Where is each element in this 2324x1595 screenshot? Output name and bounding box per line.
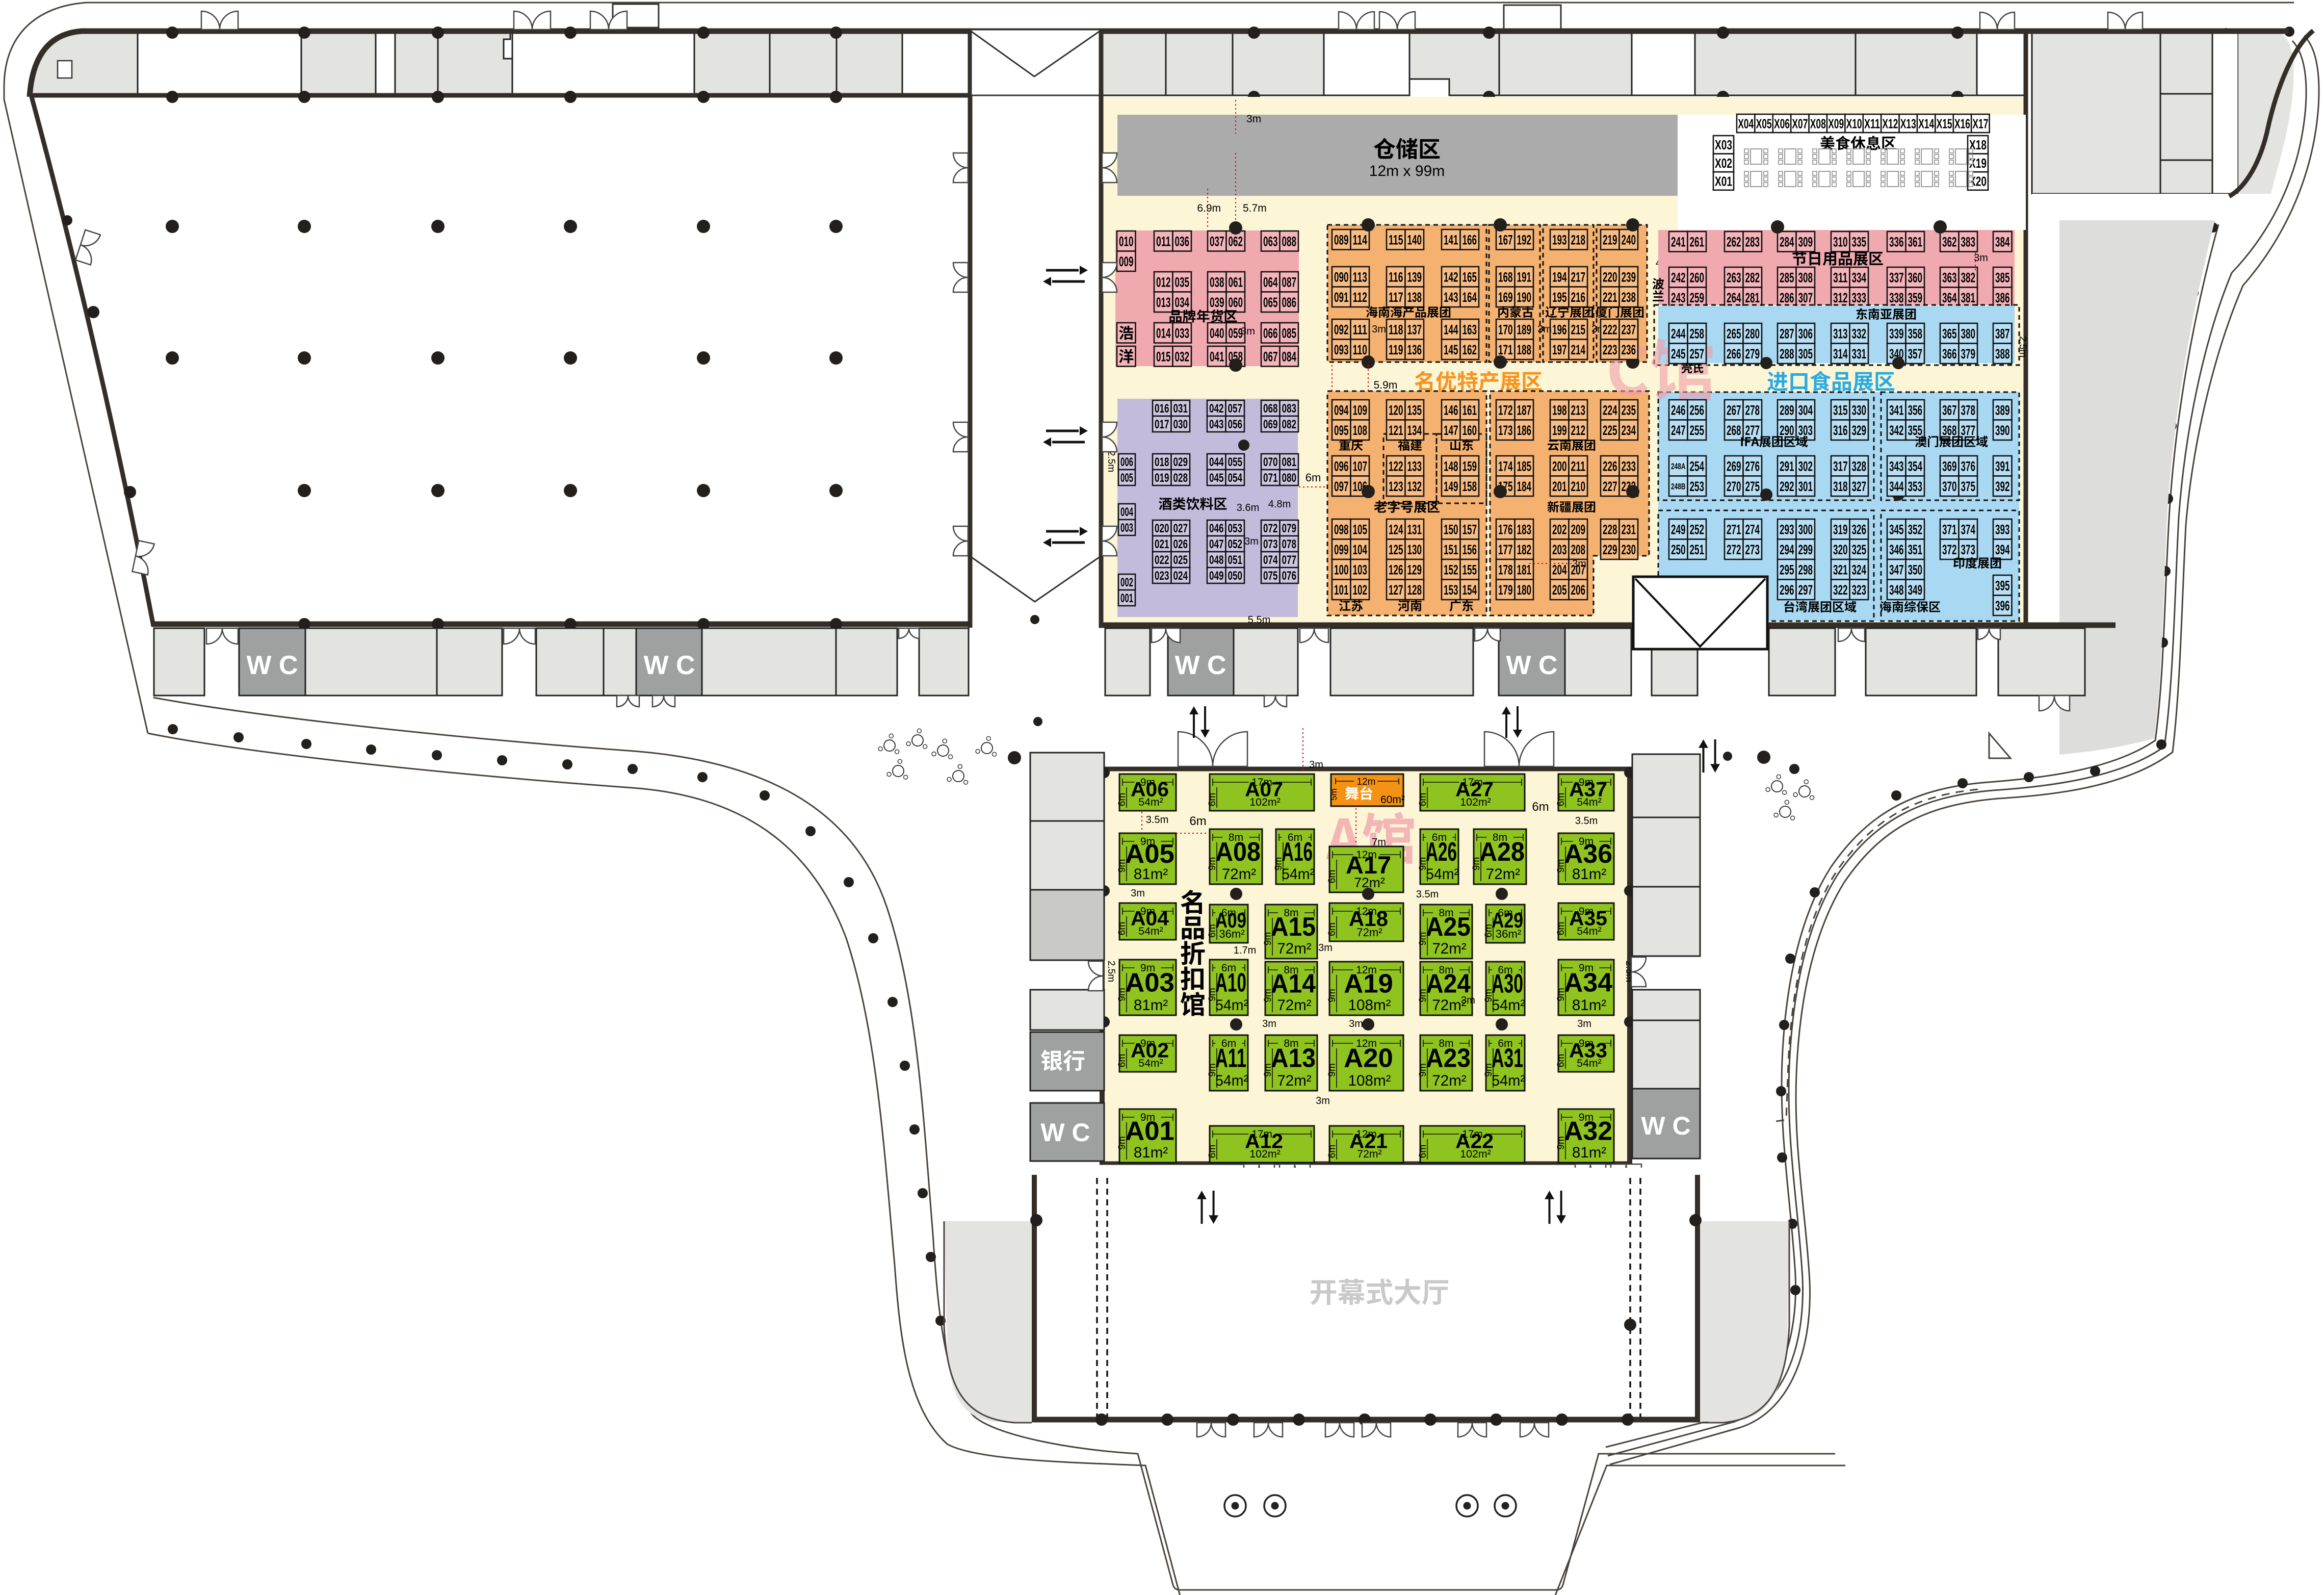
svg-text:217: 217 (1571, 269, 1586, 285)
svg-text:212: 212 (1571, 423, 1586, 438)
svg-text:72m²: 72m² (1277, 1072, 1311, 1089)
svg-text:248B: 248B (1671, 481, 1686, 491)
svg-text:254: 254 (1690, 458, 1705, 474)
svg-text:6m: 6m (1189, 814, 1206, 828)
svg-text:131: 131 (1407, 522, 1422, 537)
svg-text:298: 298 (1798, 562, 1813, 577)
svg-text:243: 243 (1671, 290, 1686, 305)
svg-text:A30: A30 (1492, 969, 1523, 999)
svg-text:139: 139 (1407, 269, 1422, 285)
svg-text:336: 336 (1889, 234, 1904, 249)
svg-text:268: 268 (1727, 423, 1741, 438)
svg-text:039: 039 (1210, 295, 1224, 310)
svg-text:326: 326 (1852, 522, 1867, 537)
svg-text:344: 344 (1889, 479, 1904, 494)
svg-text:206: 206 (1571, 582, 1586, 598)
svg-text:297: 297 (1798, 582, 1813, 598)
svg-text:135: 135 (1407, 402, 1422, 418)
svg-text:378: 378 (1961, 402, 1976, 418)
svg-text:A24: A24 (1426, 969, 1471, 999)
svg-text:351: 351 (1908, 542, 1923, 557)
svg-text:255: 255 (1690, 423, 1705, 438)
svg-text:183: 183 (1517, 522, 1532, 537)
svg-text:026: 026 (1173, 537, 1188, 551)
svg-text:057: 057 (1228, 402, 1243, 416)
svg-text:54m²: 54m² (1215, 1072, 1248, 1089)
svg-text:103: 103 (1353, 562, 1368, 577)
svg-text:3m: 3m (1349, 1018, 1363, 1030)
svg-text:084: 084 (1282, 349, 1297, 364)
svg-text:393: 393 (1995, 522, 2010, 537)
svg-text:234: 234 (1622, 423, 1636, 438)
svg-text:81m²: 81m² (1572, 866, 1606, 883)
svg-text:380: 380 (1961, 326, 1976, 341)
svg-text:033: 033 (1175, 325, 1190, 341)
svg-text:077: 077 (1282, 553, 1297, 567)
svg-text:320: 320 (1833, 542, 1848, 557)
svg-text:040: 040 (1210, 325, 1224, 341)
svg-text:6m: 6m (1556, 1054, 1566, 1067)
svg-text:341: 341 (1889, 402, 1904, 418)
svg-text:A08: A08 (1215, 837, 1261, 867)
svg-text:319: 319 (1833, 522, 1848, 537)
svg-text:227: 227 (1603, 479, 1617, 494)
svg-text:359: 359 (1908, 290, 1923, 305)
svg-text:W C: W C (246, 651, 298, 680)
svg-text:205: 205 (1552, 582, 1567, 598)
svg-text:165: 165 (1463, 269, 1477, 285)
svg-text:160: 160 (1463, 423, 1477, 438)
svg-text:382: 382 (1961, 270, 1976, 285)
svg-text:148: 148 (1444, 458, 1458, 474)
svg-text:122: 122 (1389, 458, 1403, 474)
svg-text:188: 188 (1517, 342, 1532, 357)
svg-text:092: 092 (1334, 322, 1349, 337)
svg-text:076: 076 (1282, 569, 1297, 583)
svg-text:186: 186 (1517, 423, 1532, 438)
svg-text:X04: X04 (1738, 116, 1754, 131)
svg-text:295: 295 (1780, 562, 1794, 577)
svg-text:035: 035 (1175, 274, 1190, 290)
svg-text:281: 281 (1745, 290, 1760, 305)
svg-text:082: 082 (1282, 418, 1297, 431)
svg-text:6.9m: 6.9m (1197, 202, 1221, 214)
svg-text:031: 031 (1173, 402, 1188, 416)
svg-text:101: 101 (1334, 582, 1349, 598)
svg-text:36m²: 36m² (1496, 928, 1522, 940)
svg-text:3m: 3m (1309, 759, 1323, 770)
svg-text:371: 371 (1942, 522, 1957, 537)
svg-text:6m: 6m (1418, 1145, 1428, 1158)
svg-text:54m²: 54m² (1492, 1072, 1525, 1089)
svg-text:386: 386 (1995, 290, 2010, 305)
svg-text:124: 124 (1389, 522, 1403, 537)
svg-text:375: 375 (1961, 479, 1976, 494)
svg-text:096: 096 (1334, 458, 1349, 474)
svg-text:102m²: 102m² (1249, 795, 1280, 808)
svg-text:6m: 6m (1305, 471, 1321, 484)
svg-text:043: 043 (1209, 418, 1224, 431)
svg-text:330: 330 (1852, 402, 1867, 418)
svg-text:166: 166 (1463, 232, 1477, 247)
svg-text:304: 304 (1798, 402, 1813, 418)
svg-text:81m²: 81m² (1572, 997, 1606, 1014)
svg-text:390: 390 (1995, 423, 2010, 438)
svg-text:285: 285 (1780, 270, 1794, 285)
svg-text:324: 324 (1852, 562, 1867, 577)
svg-text:3m: 3m (1316, 1095, 1330, 1107)
svg-text:022: 022 (1155, 553, 1169, 567)
svg-text:6m: 6m (1117, 1054, 1128, 1067)
svg-text:282: 282 (1745, 270, 1760, 285)
svg-text:141: 141 (1444, 232, 1458, 247)
svg-text:3.5m: 3.5m (1146, 814, 1168, 826)
svg-text:X10: X10 (1846, 116, 1862, 131)
svg-text:134: 134 (1407, 423, 1422, 438)
svg-text:392: 392 (1995, 479, 2010, 494)
svg-text:091: 091 (1334, 290, 1349, 305)
svg-text:145: 145 (1444, 342, 1458, 357)
svg-text:5.5m: 5.5m (1248, 614, 1270, 626)
svg-text:231: 231 (1622, 522, 1636, 537)
svg-text:312: 312 (1833, 290, 1848, 305)
svg-text:068: 068 (1263, 402, 1278, 416)
svg-text:236: 236 (1622, 342, 1636, 357)
svg-text:042: 042 (1209, 402, 1224, 416)
svg-text:228: 228 (1603, 522, 1617, 537)
svg-text:271: 271 (1727, 522, 1741, 537)
svg-text:54m²: 54m² (1138, 795, 1163, 808)
svg-text:210: 210 (1571, 479, 1586, 494)
svg-text:6m: 6m (1117, 793, 1128, 806)
svg-text:019: 019 (1155, 471, 1169, 485)
svg-text:369: 369 (1942, 458, 1957, 474)
svg-text:258: 258 (1690, 326, 1705, 341)
svg-text:284: 284 (1780, 234, 1794, 249)
svg-text:387: 387 (1995, 326, 2010, 341)
svg-text:012: 012 (1156, 274, 1171, 290)
svg-text:108m²: 108m² (1348, 997, 1391, 1014)
svg-text:157: 157 (1463, 522, 1477, 537)
svg-text:204: 204 (1552, 562, 1567, 577)
svg-text:025: 025 (1173, 553, 1188, 567)
svg-text:053: 053 (1228, 522, 1243, 535)
svg-text:220: 220 (1603, 269, 1617, 285)
svg-text:3.5m: 3.5m (1416, 889, 1439, 900)
svg-text:001: 001 (1120, 591, 1133, 605)
svg-text:041: 041 (1210, 349, 1224, 364)
svg-text:102m²: 102m² (1460, 795, 1491, 808)
svg-text:016: 016 (1155, 402, 1169, 416)
svg-text:237: 237 (1622, 322, 1636, 337)
svg-text:354: 354 (1908, 458, 1923, 474)
svg-text:075: 075 (1263, 569, 1278, 583)
svg-text:151: 151 (1444, 542, 1458, 557)
svg-text:3m: 3m (1537, 324, 1552, 335)
svg-text:127: 127 (1389, 582, 1403, 598)
svg-text:3m: 3m (1244, 536, 1259, 547)
svg-text:087: 087 (1282, 274, 1297, 290)
svg-text:093: 093 (1334, 342, 1349, 357)
svg-text:391: 391 (1995, 458, 2010, 474)
svg-text:117: 117 (1389, 290, 1403, 305)
svg-text:090: 090 (1334, 269, 1349, 285)
svg-text:252: 252 (1690, 522, 1705, 537)
svg-text:222: 222 (1603, 322, 1617, 337)
svg-text:023: 023 (1155, 569, 1169, 583)
svg-text:A03: A03 (1125, 968, 1174, 998)
svg-text:158: 158 (1463, 479, 1477, 494)
svg-text:253: 253 (1690, 479, 1705, 494)
svg-text:334: 334 (1852, 270, 1867, 285)
svg-text:272: 272 (1727, 542, 1741, 557)
svg-text:146: 146 (1444, 402, 1458, 418)
svg-text:266: 266 (1727, 346, 1741, 362)
svg-text:213: 213 (1571, 402, 1586, 418)
svg-text:056: 056 (1228, 418, 1243, 431)
svg-text:278: 278 (1745, 402, 1760, 418)
svg-text:267: 267 (1727, 402, 1741, 418)
svg-text:159: 159 (1463, 458, 1477, 474)
svg-text:370: 370 (1942, 479, 1957, 494)
svg-text:368: 368 (1942, 423, 1957, 438)
svg-text:156: 156 (1463, 542, 1477, 557)
svg-text:083: 083 (1282, 402, 1297, 416)
svg-text:3m: 3m (1318, 942, 1333, 954)
svg-text:X12: X12 (1882, 116, 1898, 131)
svg-text:074: 074 (1263, 553, 1278, 567)
svg-text:327: 327 (1852, 479, 1867, 494)
svg-text:218: 218 (1571, 232, 1586, 247)
svg-text:366: 366 (1942, 346, 1957, 362)
svg-text:306: 306 (1798, 326, 1813, 341)
svg-text:274: 274 (1745, 522, 1760, 537)
svg-text:049: 049 (1209, 569, 1224, 583)
svg-text:242: 242 (1671, 270, 1686, 285)
svg-text:A32: A32 (1564, 1117, 1612, 1146)
svg-text:257: 257 (1690, 346, 1705, 362)
svg-text:256: 256 (1690, 402, 1705, 418)
svg-text:367: 367 (1942, 402, 1957, 418)
svg-text:54m²: 54m² (1426, 866, 1459, 883)
svg-text:208: 208 (1571, 542, 1586, 557)
svg-text:72m²: 72m² (1357, 1147, 1381, 1160)
svg-text:120: 120 (1389, 402, 1403, 418)
svg-text:270: 270 (1727, 479, 1741, 494)
svg-text:6m: 6m (1327, 922, 1338, 936)
svg-text:X13: X13 (1900, 116, 1916, 131)
svg-text:174: 174 (1498, 458, 1513, 474)
svg-text:315: 315 (1833, 402, 1848, 418)
svg-text:286: 286 (1780, 290, 1794, 305)
svg-text:226: 226 (1603, 458, 1617, 474)
svg-text:328: 328 (1852, 458, 1867, 474)
svg-text:037: 037 (1210, 234, 1224, 249)
svg-text:066: 066 (1263, 325, 1278, 341)
svg-text:121: 121 (1389, 423, 1403, 438)
svg-text:198: 198 (1552, 402, 1567, 418)
svg-text:381: 381 (1961, 290, 1976, 305)
svg-text:385: 385 (1995, 270, 2010, 285)
svg-text:72m²: 72m² (1222, 866, 1256, 883)
svg-text:020: 020 (1155, 522, 1169, 535)
svg-text:A15: A15 (1271, 912, 1316, 942)
svg-text:086: 086 (1282, 295, 1297, 310)
svg-text:3.5m: 3.5m (1575, 815, 1598, 827)
svg-text:345: 345 (1889, 522, 1904, 537)
svg-text:383: 383 (1961, 234, 1976, 249)
svg-text:006: 006 (1120, 455, 1133, 469)
svg-text:X02: X02 (1715, 156, 1732, 171)
svg-text:062: 062 (1229, 234, 1243, 249)
svg-text:365: 365 (1942, 326, 1957, 341)
svg-text:317: 317 (1833, 458, 1848, 474)
svg-text:015: 015 (1156, 349, 1171, 364)
svg-text:3m: 3m (1131, 888, 1145, 899)
svg-text:202: 202 (1552, 522, 1567, 537)
svg-text:200: 200 (1552, 458, 1567, 474)
svg-text:W C: W C (1506, 651, 1557, 680)
svg-text:080: 080 (1282, 471, 1297, 485)
svg-text:316: 316 (1833, 423, 1848, 438)
svg-text:251: 251 (1690, 542, 1705, 557)
svg-text:161: 161 (1463, 402, 1477, 418)
svg-text:024: 024 (1173, 569, 1188, 583)
svg-text:81m²: 81m² (1134, 1144, 1168, 1161)
svg-text:085: 085 (1282, 325, 1297, 341)
svg-text:195: 195 (1552, 290, 1567, 305)
svg-text:357: 357 (1908, 346, 1923, 362)
svg-text:112: 112 (1353, 290, 1368, 305)
svg-text:063: 063 (1263, 234, 1278, 249)
svg-text:A28: A28 (1479, 837, 1525, 867)
svg-text:224: 224 (1603, 402, 1617, 418)
svg-text:235: 235 (1622, 402, 1636, 418)
svg-text:230: 230 (1622, 542, 1636, 557)
svg-text:301: 301 (1798, 479, 1813, 494)
svg-text:192: 192 (1517, 232, 1532, 247)
svg-text:190: 190 (1517, 290, 1532, 305)
svg-text:038: 038 (1210, 274, 1224, 290)
svg-text:181: 181 (1517, 562, 1532, 577)
svg-text:374: 374 (1961, 522, 1976, 537)
svg-text:143: 143 (1444, 290, 1458, 305)
svg-text:048: 048 (1209, 553, 1224, 567)
svg-text:9m: 9m (1327, 1063, 1338, 1076)
svg-text:102m²: 102m² (1249, 1147, 1280, 1160)
svg-text:339: 339 (1889, 326, 1904, 341)
svg-text:201: 201 (1552, 479, 1567, 494)
svg-text:099: 099 (1334, 542, 1349, 557)
svg-text:333: 333 (1852, 290, 1867, 305)
svg-text:098: 098 (1334, 522, 1349, 537)
svg-text:203: 203 (1552, 542, 1567, 557)
svg-text:246: 246 (1671, 402, 1686, 418)
svg-text:107: 107 (1353, 458, 1368, 474)
svg-text:169: 169 (1498, 290, 1513, 305)
svg-text:12m x 99m: 12m x 99m (1369, 163, 1445, 179)
svg-text:225: 225 (1603, 423, 1617, 438)
svg-text:173: 173 (1498, 423, 1513, 438)
svg-text:81m²: 81m² (1134, 997, 1168, 1014)
svg-text:355: 355 (1908, 423, 1923, 438)
svg-text:119: 119 (1389, 342, 1403, 357)
svg-text:81m²: 81m² (1134, 866, 1168, 883)
svg-text:310: 310 (1833, 234, 1848, 249)
svg-text:322: 322 (1833, 582, 1848, 598)
svg-text:259: 259 (1690, 290, 1705, 305)
svg-text:346: 346 (1889, 542, 1904, 557)
svg-text:277: 277 (1745, 423, 1760, 438)
svg-text:12m: 12m (1357, 777, 1376, 787)
svg-text:069: 069 (1263, 418, 1278, 431)
svg-text:245: 245 (1671, 346, 1686, 362)
svg-text:172: 172 (1498, 402, 1513, 418)
svg-text:6m: 6m (1327, 870, 1338, 883)
svg-text:004: 004 (1120, 505, 1133, 519)
svg-text:241: 241 (1671, 234, 1686, 249)
svg-text:140: 140 (1407, 232, 1422, 247)
svg-text:72m²: 72m² (1432, 940, 1466, 957)
svg-text:X08: X08 (1810, 116, 1826, 131)
svg-text:X03: X03 (1715, 137, 1732, 152)
svg-text:142: 142 (1444, 269, 1458, 285)
svg-text:070: 070 (1263, 455, 1278, 469)
svg-text:050: 050 (1228, 569, 1243, 583)
svg-text:044: 044 (1209, 455, 1224, 469)
svg-text:305: 305 (1798, 346, 1813, 362)
svg-text:054: 054 (1228, 471, 1243, 485)
svg-text:036: 036 (1175, 234, 1190, 249)
svg-text:071: 071 (1263, 471, 1278, 485)
svg-text:150: 150 (1444, 522, 1458, 537)
svg-text:311: 311 (1833, 270, 1848, 285)
svg-text:247: 247 (1671, 423, 1686, 438)
svg-text:3m: 3m (1577, 1018, 1591, 1030)
svg-text:347: 347 (1889, 562, 1904, 577)
svg-text:332: 332 (1852, 326, 1867, 341)
svg-text:348: 348 (1889, 582, 1904, 598)
svg-text:X06: X06 (1774, 116, 1790, 131)
svg-text:104: 104 (1353, 542, 1368, 557)
svg-text:323: 323 (1852, 582, 1867, 598)
svg-text:013: 013 (1156, 295, 1171, 310)
svg-text:X09: X09 (1828, 116, 1844, 131)
svg-text:108m²: 108m² (1348, 1072, 1391, 1089)
svg-text:003: 003 (1120, 521, 1133, 535)
svg-text:123: 123 (1389, 479, 1403, 494)
svg-text:167: 167 (1498, 232, 1513, 247)
svg-text:055: 055 (1228, 455, 1243, 469)
svg-text:250: 250 (1671, 542, 1686, 557)
svg-text:54m²: 54m² (1577, 795, 1601, 808)
svg-text:287: 287 (1780, 326, 1794, 341)
svg-text:A20: A20 (1344, 1044, 1393, 1073)
svg-text:128: 128 (1407, 582, 1422, 598)
svg-text:136: 136 (1407, 342, 1422, 357)
svg-text:273: 273 (1745, 542, 1760, 557)
svg-text:4.8m: 4.8m (1268, 499, 1291, 510)
svg-text:097: 097 (1334, 479, 1349, 494)
svg-text:189: 189 (1517, 322, 1532, 337)
svg-text:A23: A23 (1426, 1044, 1471, 1073)
svg-text:147: 147 (1444, 423, 1458, 438)
svg-text:A14: A14 (1271, 969, 1316, 999)
svg-text:262: 262 (1727, 234, 1741, 249)
svg-text:1.7m: 1.7m (1234, 945, 1256, 956)
svg-text:308: 308 (1798, 270, 1813, 285)
svg-text:238: 238 (1622, 290, 1636, 305)
